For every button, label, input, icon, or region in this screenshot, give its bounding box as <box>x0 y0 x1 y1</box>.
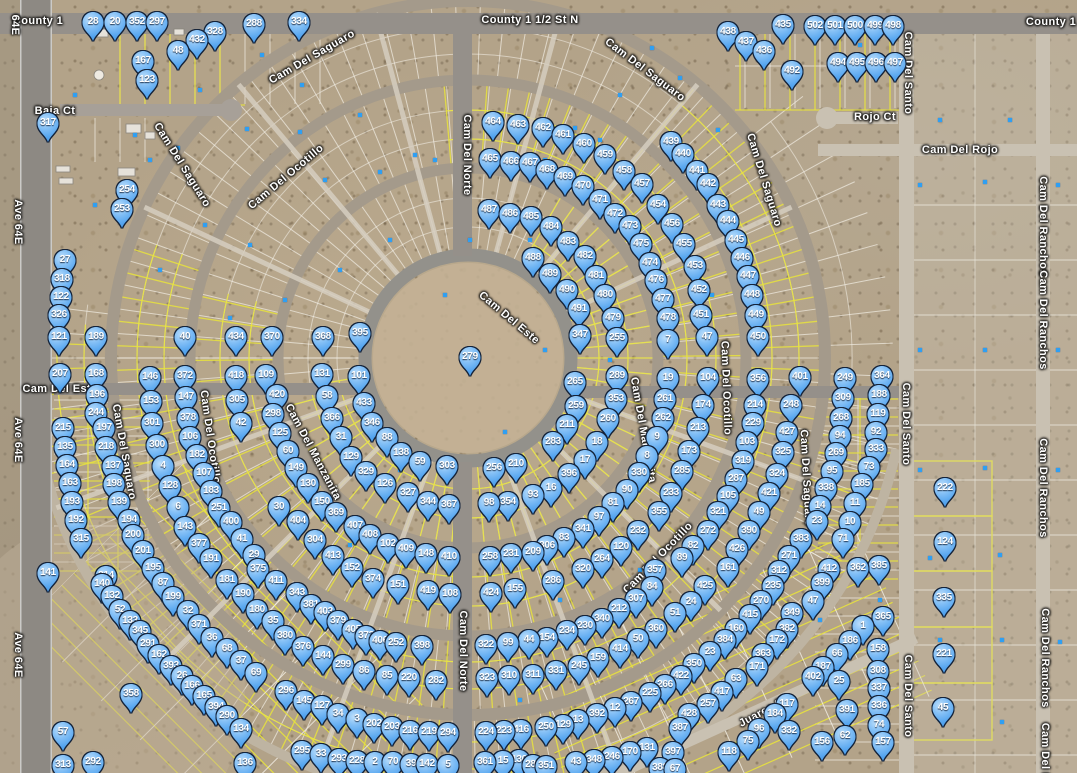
map-pin[interactable]: 395 <box>348 322 372 353</box>
pin-lot-number: 478 <box>656 312 680 323</box>
map-pin[interactable]: 136 <box>233 752 257 773</box>
pin-lot-number: 474 <box>638 257 662 268</box>
map-pin[interactable]: 256 <box>482 457 506 488</box>
pin-lot-number: 292 <box>81 756 105 767</box>
pin-lot-number: 147 <box>174 391 198 402</box>
pin-lot-number: 414 <box>608 643 632 654</box>
map-pin[interactable]: 209 <box>521 541 545 572</box>
map-pin[interactable]: 20 <box>103 11 127 42</box>
pin-lot-number: 253 <box>110 203 134 214</box>
map-pin[interactable]: 370 <box>260 326 284 357</box>
map-pin[interactable]: 155 <box>503 578 527 609</box>
pin-lot-number: 444 <box>716 215 740 226</box>
map-pin[interactable]: 282 <box>424 670 448 701</box>
pin-lot-number: 197 <box>92 422 116 433</box>
pin-lot-number: 218 <box>94 441 118 452</box>
pin-lot-number: 71 <box>831 533 855 544</box>
pin-lot-number: 400 <box>219 516 243 527</box>
lot-dot <box>93 203 97 207</box>
map-pin[interactable]: 231 <box>499 543 523 574</box>
map-pin[interactable]: 258 <box>478 546 502 577</box>
pin-lot-number: 122 <box>49 291 73 302</box>
map-pin[interactable]: 320 <box>571 558 595 589</box>
pin-lot-number: 183 <box>199 485 223 496</box>
pin-lot-number: 107 <box>192 467 216 478</box>
pin-lot-number: 48 <box>166 45 190 56</box>
map-pin[interactable]: 398 <box>410 635 434 666</box>
pin-lot-number: 477 <box>651 293 675 304</box>
pin-lot-number: 85 <box>375 670 399 681</box>
map-pin[interactable]: 283 <box>541 431 565 462</box>
lot-dot <box>358 113 362 117</box>
lot-dot <box>260 53 264 57</box>
pin-lot-number: 368 <box>311 331 335 342</box>
map-pin[interactable]: 151 <box>386 574 410 605</box>
map-pin[interactable]: 294 <box>436 722 460 753</box>
map-pin[interactable]: 332 <box>777 720 801 751</box>
map-pin[interactable]: 492 <box>780 60 804 91</box>
map-pin[interactable]: 42 <box>229 412 253 443</box>
pin-lot-number: 366 <box>320 412 344 423</box>
lot-dot <box>468 238 472 242</box>
pin-lot-number: 158 <box>866 643 890 654</box>
pin-lot-number: 336 <box>867 700 891 711</box>
map-pin[interactable]: 62 <box>833 725 857 756</box>
pin-lot-number: 131 <box>310 368 334 379</box>
pin-lot-number: 443 <box>706 199 730 210</box>
map-pin[interactable]: 358 <box>119 683 143 714</box>
pin-lot-number: 318 <box>50 273 74 284</box>
map-pin[interactable]: 48 <box>166 40 190 71</box>
pin-lot-number: 95 <box>820 465 844 476</box>
lot-dot <box>323 178 327 182</box>
map-pin[interactable]: 108 <box>438 583 462 614</box>
map-pin[interactable]: 45 <box>931 697 955 728</box>
pin-lot-number: 410 <box>437 551 461 562</box>
map-pin[interactable]: 322 <box>474 634 498 665</box>
pin-lot-number: 11 <box>843 497 867 508</box>
lot-dot <box>433 158 437 162</box>
pin-lot-number: 455 <box>672 238 696 249</box>
pin-lot-number: 317 <box>36 117 60 128</box>
pin-lot-number: 209 <box>521 546 545 557</box>
map-pin[interactable]: 25 <box>827 670 851 701</box>
pin-lot-number: 119 <box>866 408 890 419</box>
pin-lot-number: 245 <box>567 660 591 671</box>
pin-lot-number: 364 <box>870 370 894 381</box>
pin-lot-number: 370 <box>260 331 284 342</box>
pin-lot-number: 60 <box>276 445 300 456</box>
pin-lot-number: 18 <box>585 436 609 447</box>
pin-lot-number: 74 <box>867 719 891 730</box>
lot-dot <box>198 88 202 92</box>
map-pin[interactable]: 361 <box>473 751 497 773</box>
pin-lot-number: 326 <box>47 309 71 320</box>
map-pin[interactable]: 414 <box>608 638 632 669</box>
map-pin[interactable]: 434 <box>224 326 248 357</box>
map-pin[interactable]: 148 <box>414 543 438 574</box>
pin-lot-number: 479 <box>601 312 625 323</box>
map-pin[interactable]: 323 <box>475 667 499 698</box>
map-pin[interactable]: 347 <box>568 324 592 355</box>
map-pin[interactable]: 436 <box>752 40 776 71</box>
pin-lot-number: 331 <box>544 665 568 676</box>
map-pin[interactable]: 402 <box>801 666 825 697</box>
lot-dot <box>918 468 922 472</box>
map-pin[interactable]: 43 <box>564 751 588 773</box>
pin-lot-number: 190 <box>231 588 255 599</box>
map-pin[interactable]: 255 <box>605 327 629 358</box>
pin-lot-number: 323 <box>475 672 499 683</box>
pin-lot-number: 378 <box>176 412 200 423</box>
pin-lot-number: 126 <box>373 478 397 489</box>
pin-lot-number: 387 <box>668 722 692 733</box>
pin-lot-number: 464 <box>481 116 505 127</box>
map-pin[interactable]: 286 <box>541 570 565 601</box>
lot-dot <box>638 568 642 572</box>
map-pin[interactable]: 171 <box>745 656 769 687</box>
pin-lot-number: 498 <box>881 20 905 31</box>
pin-lot-number: 43 <box>564 756 588 767</box>
pin-lot-number: 260 <box>596 413 620 424</box>
map-pin[interactable]: 71 <box>831 528 855 559</box>
pin-lot-number: 337 <box>867 682 891 693</box>
lot-dot <box>1000 638 1004 642</box>
pin-lot-number: 201 <box>131 545 155 556</box>
map-pin[interactable]: 252 <box>384 632 408 663</box>
map-pin[interactable]: 7 <box>656 329 680 360</box>
map-pin[interactable]: 401 <box>788 366 812 397</box>
map-pin[interactable]: 207 <box>48 363 72 394</box>
map-pin[interactable]: 374 <box>361 568 385 599</box>
pin-lot-number: 136 <box>233 757 257 768</box>
map-pin[interactable]: 69 <box>244 662 268 693</box>
pin-lot-number: 459 <box>593 149 617 160</box>
pin-lot-number: 69 <box>244 667 268 678</box>
pin-lot-number: 262 <box>651 412 675 423</box>
pin-lot-number: 319 <box>731 455 755 466</box>
lot-dot <box>338 268 342 272</box>
lot-dot <box>300 83 304 87</box>
map-pin[interactable]: 157 <box>871 731 895 762</box>
lot-dot <box>443 293 447 297</box>
map-pin[interactable]: 331 <box>544 660 568 691</box>
pin-lot-number: 109 <box>254 369 278 380</box>
pin-lot-number: 330 <box>627 467 651 478</box>
pin-lot-number: 49 <box>747 506 771 517</box>
map-pin[interactable]: 47 <box>695 326 719 357</box>
pin-lot-number: 103 <box>735 436 759 447</box>
map-pin[interactable]: 40 <box>173 326 197 357</box>
pin-lot-number: 192 <box>64 514 88 525</box>
pin-lot-number: 385 <box>867 560 891 571</box>
map-pin[interactable]: 250 <box>534 716 558 747</box>
pin-lot-number: 124 <box>933 536 957 547</box>
map-pin[interactable]: 44 <box>517 629 541 660</box>
pin-lot-number: 141 <box>36 567 60 578</box>
lot-dot <box>283 298 287 302</box>
map-pin[interactable]: 126 <box>373 473 397 504</box>
map-pin[interactable]: 118 <box>717 741 741 772</box>
map-pin[interactable]: 310 <box>497 665 521 696</box>
lot-dot <box>598 138 602 142</box>
map-pin[interactable]: 98 <box>477 492 501 523</box>
map-pin[interactable]: 123 <box>135 69 159 100</box>
pin-lot-number: 301 <box>140 417 164 428</box>
map-pin[interactable]: 424 <box>479 582 503 613</box>
lot-dot <box>158 268 162 272</box>
map-pin[interactable]: 93 <box>521 484 545 515</box>
pin-lot-number: 254 <box>115 184 139 195</box>
lot-dot <box>918 183 922 187</box>
map-pin[interactable]: 355 <box>647 501 671 532</box>
pin-lot-number: 210 <box>504 458 528 469</box>
map-pin[interactable]: 419 <box>416 580 440 611</box>
lot-dot <box>518 698 522 702</box>
map-pin[interactable]: 124 <box>933 531 957 562</box>
pin-lot-number: 435 <box>771 19 795 30</box>
map-pin[interactable]: 220 <box>397 667 421 698</box>
pin-lot-number: 294 <box>436 727 460 738</box>
pin-lot-number: 25 <box>827 675 851 686</box>
pin-lot-number: 332 <box>777 725 801 736</box>
map-pin[interactable]: 5 <box>436 754 460 773</box>
pin-lot-number: 492 <box>780 65 804 76</box>
pin-lot-number: 191 <box>199 553 223 564</box>
pin-lot-number: 424 <box>479 587 503 598</box>
map-pin[interactable]: 385 <box>867 555 891 586</box>
map-pin[interactable]: 497 <box>883 52 907 83</box>
pin-lot-number: 153 <box>139 395 163 406</box>
map-pin[interactable]: 28 <box>81 11 105 42</box>
pin-lot-number: 283 <box>541 436 565 447</box>
map-pin[interactable]: 368 <box>311 326 335 357</box>
pin-lot-number: 358 <box>119 688 143 699</box>
pin-lot-number: 427 <box>775 426 799 437</box>
map-pin[interactable]: 189 <box>84 326 108 357</box>
pin-lot-number: 383 <box>789 533 813 544</box>
map-pin[interactable]: 59 <box>408 451 432 482</box>
map-pin[interactable]: 210 <box>504 453 528 484</box>
satellite-map[interactable]: County 1County 1 1/2 St NCounty 1Cam Del… <box>0 0 1077 773</box>
map-pin[interactable]: 57 <box>51 721 75 752</box>
lot-dot <box>1008 118 1012 122</box>
pin-lot-number: 447 <box>736 270 760 281</box>
pin-lot-number: 333 <box>864 443 888 454</box>
pin-lot-number: 148 <box>414 548 438 559</box>
pin-lot-number: 309 <box>831 392 855 403</box>
pin-lot-number: 449 <box>744 309 768 320</box>
pin-lot-number: 390 <box>737 525 761 536</box>
pin-lot-number: 128 <box>158 480 182 491</box>
pin-lot-number: 338 <box>814 482 838 493</box>
pin-lot-number: 45 <box>931 702 955 713</box>
pin-lot-number: 224 <box>474 726 498 737</box>
pin-lot-number: 445 <box>724 234 748 245</box>
pin-lot-number: 9 <box>645 431 669 442</box>
lot-dot <box>878 598 882 602</box>
pin-lot-number: 324 <box>765 468 789 479</box>
map-pin[interactable]: 317 <box>36 112 60 143</box>
map-pin[interactable]: 498 <box>881 15 905 46</box>
map-pin[interactable]: 245 <box>567 655 591 686</box>
pin-lot-number: 101 <box>347 370 371 381</box>
pin-lot-number: 211 <box>555 419 579 430</box>
pin-lot-number: 200 <box>121 529 145 540</box>
pin-lot-number: 361 <box>473 756 497 767</box>
map-pin[interactable]: 134 <box>229 718 253 749</box>
pin-lot-number: 215 <box>51 422 75 433</box>
pin-lot-number: 367 <box>437 499 461 510</box>
map-pin[interactable]: 463 <box>506 114 530 145</box>
map-pin[interactable]: 297 <box>145 11 169 42</box>
map-pin[interactable]: 47 <box>801 590 825 621</box>
lot-dot <box>203 223 207 227</box>
map-pin[interactable]: 303 <box>435 455 459 486</box>
pin-lot-number: 98 <box>477 497 501 508</box>
map-pin[interactable]: 288 <box>242 13 266 44</box>
pin-lot-number: 446 <box>730 252 754 263</box>
pin-lot-number: 315 <box>69 533 93 544</box>
pin-lot-number: 433 <box>352 397 376 408</box>
pin-lot-number: 418 <box>224 370 248 381</box>
pin-lot-number: 353 <box>604 393 628 404</box>
map-pin[interactable]: 313 <box>51 754 75 773</box>
pin-lot-number: 434 <box>224 331 248 342</box>
pin-lot-number: 490 <box>555 284 579 295</box>
pin-lot-number: 23 <box>805 515 829 526</box>
pin-lot-number: 151 <box>386 579 410 590</box>
pin-lot-number: 356 <box>746 373 770 384</box>
pin-lot-number: 355 <box>647 506 671 517</box>
pin-lot-number: 214 <box>743 399 767 410</box>
map-pin[interactable]: 222 <box>933 477 957 508</box>
pin-lot-number: 57 <box>51 726 75 737</box>
pin-lot-number: 168 <box>84 368 108 379</box>
pin-lot-number: 476 <box>644 274 668 285</box>
lot-dot <box>1000 720 1004 724</box>
pin-lot-number: 73 <box>857 461 881 472</box>
map-pin[interactable]: 89 <box>670 547 694 578</box>
map-pin[interactable]: 141 <box>36 562 60 593</box>
pin-lot-number: 182 <box>185 449 209 460</box>
pin-lot-number: 473 <box>618 220 642 231</box>
pin-lot-number: 171 <box>745 661 769 672</box>
pin-lot-number: 475 <box>629 238 653 249</box>
lot-dot <box>716 128 720 132</box>
pin-lot-number: 161 <box>716 562 740 573</box>
map-pin[interactable]: 410 <box>437 546 461 577</box>
pin-lot-number: 268 <box>829 412 853 423</box>
map-pin[interactable]: 351 <box>534 755 558 773</box>
map-pin[interactable]: 99 <box>496 632 520 663</box>
pin-lot-number: 425 <box>693 580 717 591</box>
pin-lot-number: 92 <box>864 426 888 437</box>
pin-lot-number: 89 <box>670 552 694 563</box>
pin-lot-number: 463 <box>506 119 530 130</box>
map-pin[interactable]: 279 <box>458 346 482 377</box>
lot-dot <box>503 430 507 434</box>
lot-dot <box>73 93 77 97</box>
pin-lot-number: 362 <box>846 562 870 573</box>
map-pin[interactable]: 334 <box>287 11 311 42</box>
pin-lot-number: 334 <box>287 16 311 27</box>
pin-lot-number: 135 <box>53 441 77 452</box>
pin-lot-number: 44 <box>517 634 541 645</box>
pin-lot-number: 121 <box>47 331 71 342</box>
lot-dot <box>983 466 987 470</box>
map-pin[interactable]: 464 <box>481 111 505 142</box>
pin-lot-number: 106 <box>178 431 202 442</box>
pin-lot-number: 259 <box>564 400 588 411</box>
map-pin[interactable]: 67 <box>663 758 687 773</box>
pin-lot-number: 28 <box>81 16 105 27</box>
lot-dot <box>176 146 180 150</box>
pin-lot-number: 402 <box>801 671 825 682</box>
pin-lot-number: 41 <box>230 533 254 544</box>
map-pin[interactable]: 121 <box>47 326 71 357</box>
map-pin[interactable]: 253 <box>110 198 134 229</box>
pin-lot-number: 118 <box>717 746 741 757</box>
pin-lot-number: 4 <box>151 460 175 471</box>
map-pin[interactable]: 85 <box>375 665 399 696</box>
pin-lot-number: 47 <box>801 595 825 606</box>
map-pin[interactable]: 156 <box>810 731 834 762</box>
pin-lot-number: 426 <box>725 543 749 554</box>
pin-lot-number: 310 <box>497 670 521 681</box>
pin-lot-number: 108 <box>438 588 462 599</box>
pin-lot-number: 143 <box>173 521 197 532</box>
map-pin[interactable]: 311 <box>521 664 545 695</box>
map-pin[interactable]: 450 <box>746 326 770 357</box>
map-pin[interactable]: 292 <box>81 751 105 773</box>
pin-lot-number: 395 <box>348 327 372 338</box>
pin-lot-number: 229 <box>741 417 765 428</box>
pin-lot-number: 286 <box>541 575 565 586</box>
pin-lot-number: 157 <box>871 736 895 747</box>
map-pin[interactable]: 86 <box>352 660 376 691</box>
map-pin[interactable]: 367 <box>437 494 461 525</box>
map-pin[interactable]: 362 <box>846 557 870 588</box>
map-pin[interactable]: 335 <box>932 587 956 618</box>
pin-lot-number: 311 <box>521 669 545 680</box>
pin-lot-number: 188 <box>867 389 891 400</box>
pin-lot-number: 252 <box>384 637 408 648</box>
lot-dot <box>245 127 249 131</box>
lot-dot <box>298 130 302 134</box>
pin-lot-number: 189 <box>84 331 108 342</box>
lot-dot <box>378 170 382 174</box>
pin-lot-number: 59 <box>408 456 432 467</box>
pin-lot-number: 303 <box>435 460 459 471</box>
map-pin[interactable]: 315 <box>69 528 93 559</box>
pin-lot-number: 321 <box>706 506 730 517</box>
pin-lot-number: 391 <box>835 704 859 715</box>
pin-lot-number: 174 <box>691 399 715 410</box>
pin-lot-number: 62 <box>833 730 857 741</box>
lot-dot <box>248 243 252 247</box>
map-pin[interactable]: 161 <box>716 557 740 588</box>
pin-lot-number: 5 <box>436 759 460 770</box>
pin-lot-number: 451 <box>689 309 713 320</box>
pin-lot-number: 196 <box>85 389 109 400</box>
pin-lot-number: 185 <box>850 478 874 489</box>
pin-lot-number: 488 <box>521 252 545 263</box>
pin-lot-number: 480 <box>593 289 617 300</box>
pin-lot-number: 256 <box>482 462 506 473</box>
map-pin[interactable]: 221 <box>932 643 956 674</box>
map-pin[interactable]: 224 <box>474 721 498 752</box>
